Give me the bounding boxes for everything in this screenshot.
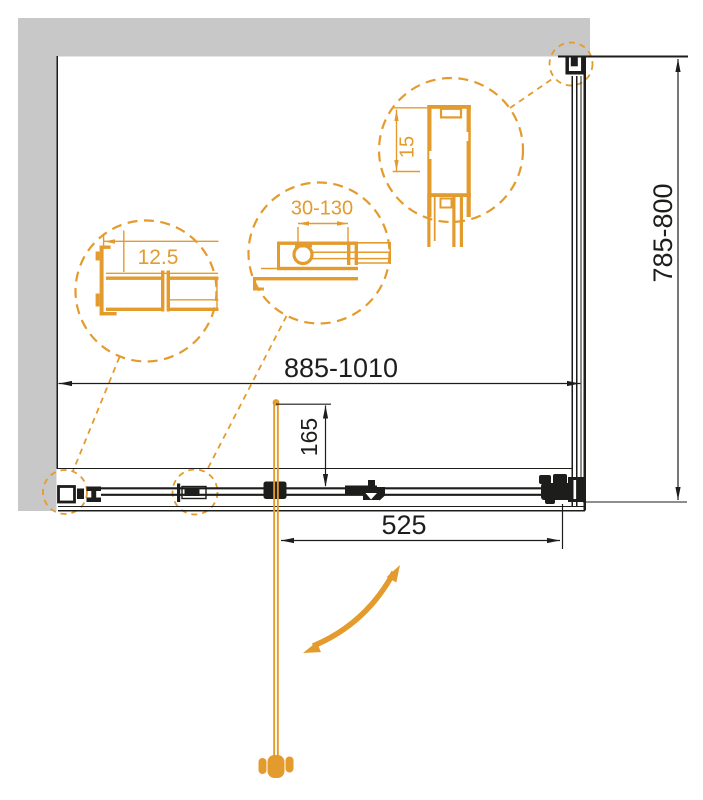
detail-glass-profile: 15 xyxy=(393,105,471,247)
leader-line-wall-profile xyxy=(73,357,120,471)
depth-arrow-top xyxy=(675,59,680,72)
d3-right-notch xyxy=(465,132,469,141)
mid-fitting-slider xyxy=(185,489,200,496)
assembly-main-body xyxy=(541,483,571,500)
dimension-depth: 785-800 xyxy=(648,59,681,500)
d2-block-bar-1 xyxy=(347,242,350,266)
d1-profile-tab-bottom xyxy=(100,312,117,315)
d3-lower-bar-1 xyxy=(427,197,430,247)
d2-block-bar-2 xyxy=(355,242,358,266)
roller-bar xyxy=(345,486,377,495)
corner-roller-assembly xyxy=(539,474,585,504)
adjustment-range-label: 30-130 xyxy=(291,198,353,220)
depth-dim-label: 785-800 xyxy=(648,183,678,282)
d2-arrow-right xyxy=(337,221,348,225)
d2-lower-bar-2 xyxy=(253,277,358,280)
d1-profile-bump-2 xyxy=(96,294,100,307)
pivot-offset-arrow-bottom xyxy=(323,474,328,487)
pivot-offset-arrow-top xyxy=(323,406,328,419)
wall-left xyxy=(18,18,57,511)
corner-wall-bracket xyxy=(567,57,583,73)
d1-right-bottom-bar xyxy=(170,308,219,311)
assembly-nub-top xyxy=(539,475,551,484)
d1-channel-top xyxy=(106,277,161,280)
detail-adjustment-profile: 30-130 xyxy=(253,198,391,291)
door-glass-edge-right xyxy=(277,402,279,758)
d2-roller xyxy=(294,246,312,264)
bottom-rail xyxy=(59,474,586,504)
glass-inset-label: 15 xyxy=(397,136,419,158)
width-dim-label: 885-1010 xyxy=(284,353,398,383)
rail-mid-fitting xyxy=(177,484,206,503)
profile-overlap-label: 12.5 xyxy=(138,246,179,269)
d2-step-hbar xyxy=(253,288,264,291)
d3-lower-bar-3 xyxy=(452,197,455,247)
assembly-slot xyxy=(574,480,577,499)
d3-right-bar xyxy=(467,105,471,217)
foot-prong-left xyxy=(259,758,267,774)
d1-wall-profile-bar xyxy=(100,246,104,316)
dimension-width: 885-1010 xyxy=(59,353,581,386)
shower-enclosure-plan-drawing: 885-1010 785-800 525 165 xyxy=(0,0,703,800)
d1-channel-bottom xyxy=(106,308,161,311)
technical-drawing-canvas: 885-1010 785-800 525 165 xyxy=(0,0,703,800)
d1-profile-bump-1 xyxy=(96,252,100,261)
swing-arc xyxy=(313,572,394,646)
depth-arrow-bottom xyxy=(675,487,680,500)
d2-roller-bar xyxy=(295,245,312,248)
roller-nub xyxy=(368,480,375,486)
detail-wall-profile: 12.5 xyxy=(96,231,219,316)
mid-fitting-plate xyxy=(177,484,180,503)
d2-left-bar xyxy=(277,242,280,269)
door-glass-edge-left xyxy=(273,402,275,758)
d2-lower-bar-1 xyxy=(277,267,358,270)
door-swing-arrow xyxy=(303,565,400,653)
door-width-arrow-left xyxy=(281,538,294,543)
d3-arrow-top xyxy=(394,110,398,121)
d3-lower-box xyxy=(441,199,452,208)
d1-right-top-bar xyxy=(170,277,219,280)
width-arrow-right xyxy=(567,381,580,386)
door-width-label: 525 xyxy=(381,510,426,540)
assembly-nub-bottom xyxy=(545,498,555,504)
d1-arrow xyxy=(104,239,115,243)
pivot-offset-label: 165 xyxy=(296,418,322,456)
d3-lower-bar-2 xyxy=(434,197,436,241)
width-arrow-left xyxy=(59,381,72,386)
foot-prong-right xyxy=(286,757,294,773)
d1-profile-tab-top xyxy=(100,246,111,249)
d1-divider-bar-2 xyxy=(167,271,170,312)
rail-ibeam-fitting xyxy=(87,487,102,503)
roller-fitting xyxy=(345,480,385,501)
d3-arrow-bottom xyxy=(394,160,398,171)
wall-profile-end-cap xyxy=(59,487,75,503)
foot-body xyxy=(268,755,285,778)
rail-connector-block xyxy=(77,489,84,500)
assembly-end-block xyxy=(568,477,585,502)
d3-top-slot xyxy=(441,109,461,118)
dimension-pivot-offset: 165 xyxy=(276,404,331,487)
d2-arrow-left xyxy=(298,221,309,225)
d3-lower-bar-4 xyxy=(460,197,463,247)
d3-left-notch xyxy=(429,151,431,159)
bracket-tab xyxy=(571,57,578,67)
d2-top-bar xyxy=(277,242,358,245)
open-door xyxy=(259,399,401,778)
d1-divider-bar-1 xyxy=(161,271,164,312)
door-width-arrow-right xyxy=(547,538,560,543)
leader-line-glass-profile xyxy=(510,77,555,108)
door-top-cap xyxy=(273,399,280,406)
door-foot-bracket xyxy=(259,755,294,778)
wall-top xyxy=(18,18,590,57)
d3-divider-bar xyxy=(427,193,471,197)
enclosure-outline xyxy=(57,56,688,511)
